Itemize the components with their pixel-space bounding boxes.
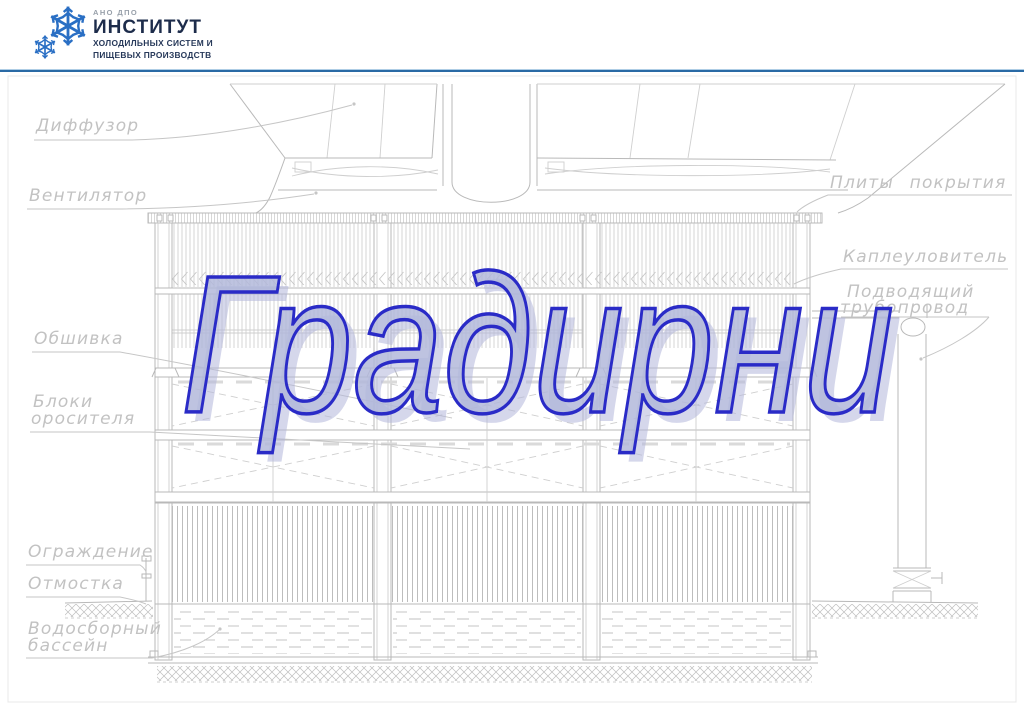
fence-post <box>142 556 151 601</box>
water-basin <box>148 604 818 682</box>
ground-left <box>65 601 153 618</box>
louver-band <box>155 503 810 602</box>
label-blind-area: Отмостка <box>28 574 124 594</box>
ground-right <box>812 601 978 618</box>
label-cover-plates: Плиты покрытия <box>830 173 1006 193</box>
slide: АНО ДПО ИНСТИТУТ ХОЛОДИЛЬНЫХ СИСТЕМ И ПИ… <box>0 0 1024 708</box>
roof-slab <box>148 213 822 223</box>
slide-title: Градирни <box>181 235 894 454</box>
label-basin-2: бассейн <box>28 636 109 656</box>
label-fence: Ограждение <box>28 542 154 562</box>
diffuser-and-fan-assembly <box>230 84 1005 213</box>
label-cladding: Обшивка <box>34 329 124 349</box>
cooling-tower-drawing: Диффузор Вентилятор Обшивка Блоки оросит… <box>0 0 1024 708</box>
label-fan: Вентилятор <box>29 186 147 206</box>
label-sprinkler-2: оросителя <box>31 409 135 429</box>
label-diffuser: Диффузор <box>35 116 139 136</box>
